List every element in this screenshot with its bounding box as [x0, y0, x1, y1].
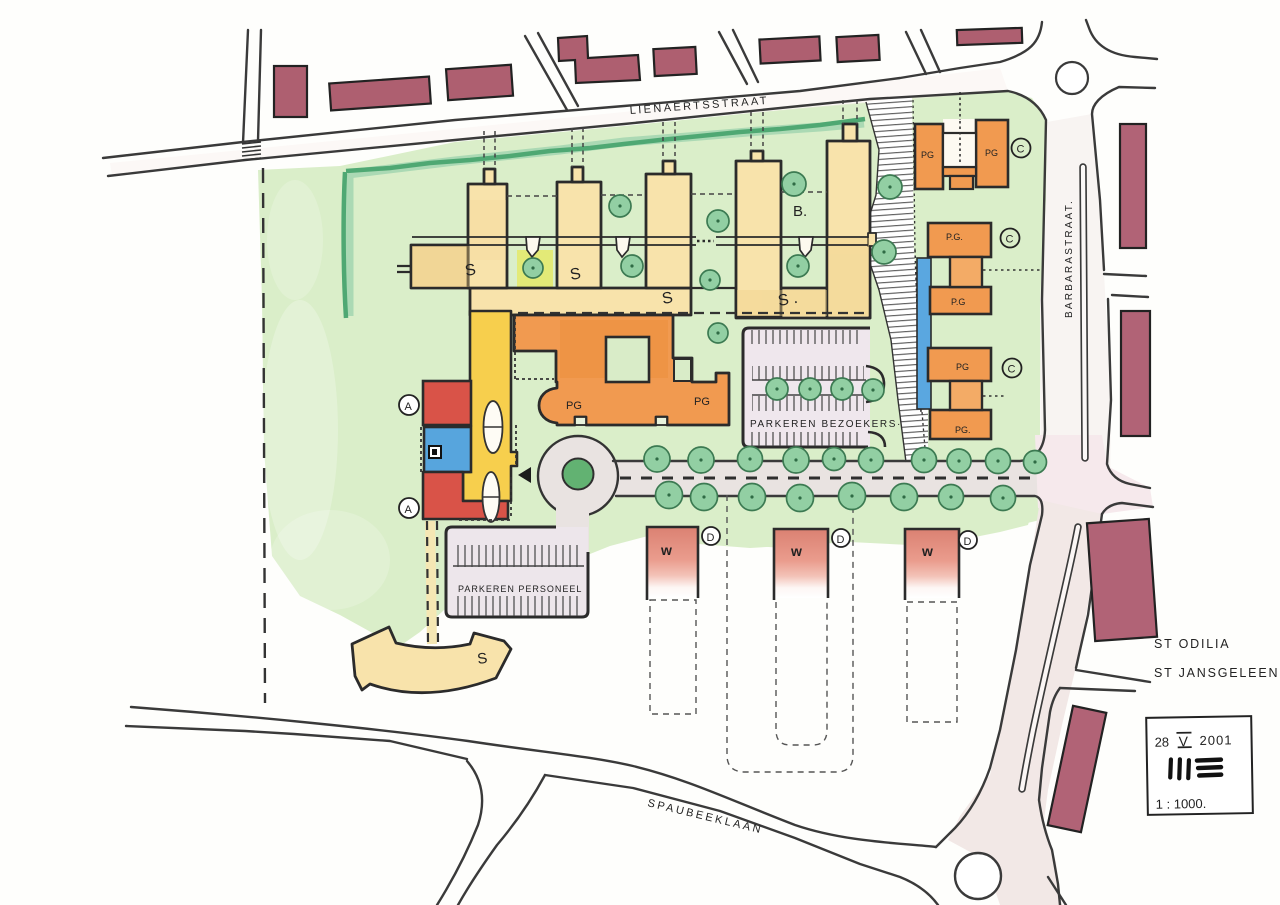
- svg-text:C: C: [1008, 364, 1016, 376]
- svg-text:S .: S .: [777, 290, 799, 310]
- svg-text:PG.: PG.: [955, 425, 971, 435]
- svg-text:D: D: [964, 536, 972, 548]
- svg-text:PG: PG: [694, 396, 710, 408]
- svg-text:A: A: [405, 401, 413, 413]
- svg-text:PG: PG: [956, 362, 969, 372]
- svg-text:P.G: P.G: [951, 297, 965, 307]
- svg-text:ST JANSGELEEN: ST JANSGELEEN: [1154, 666, 1279, 680]
- svg-text:w: w: [660, 542, 672, 558]
- svg-text:BARBARASTRAAT.: BARBARASTRAAT.: [1064, 199, 1075, 318]
- svg-text:PG: PG: [921, 150, 934, 160]
- svg-text:P.G.: P.G.: [946, 232, 963, 242]
- svg-text:D: D: [707, 532, 715, 544]
- svg-text:PARKEREN PERSONEEL: PARKEREN PERSONEEL: [458, 584, 582, 594]
- svg-text:C: C: [1006, 234, 1014, 246]
- svg-text:PG: PG: [566, 400, 582, 412]
- svg-text:PG: PG: [985, 148, 998, 158]
- svg-text:D: D: [837, 534, 845, 546]
- svg-text:28: 28: [1154, 735, 1169, 750]
- svg-text:B.: B.: [793, 203, 807, 220]
- svg-text:2001: 2001: [1199, 732, 1232, 748]
- svg-text:A: A: [405, 504, 413, 516]
- svg-text:1 : 1000.: 1 : 1000.: [1156, 796, 1207, 812]
- svg-text:w: w: [921, 543, 933, 559]
- svg-text:PARKEREN BEZOEKERS·: PARKEREN BEZOEKERS·: [750, 419, 902, 430]
- svg-text:w: w: [790, 543, 802, 559]
- svg-text:C: C: [1017, 144, 1025, 156]
- svg-text:ST ODILIA: ST ODILIA: [1154, 637, 1230, 651]
